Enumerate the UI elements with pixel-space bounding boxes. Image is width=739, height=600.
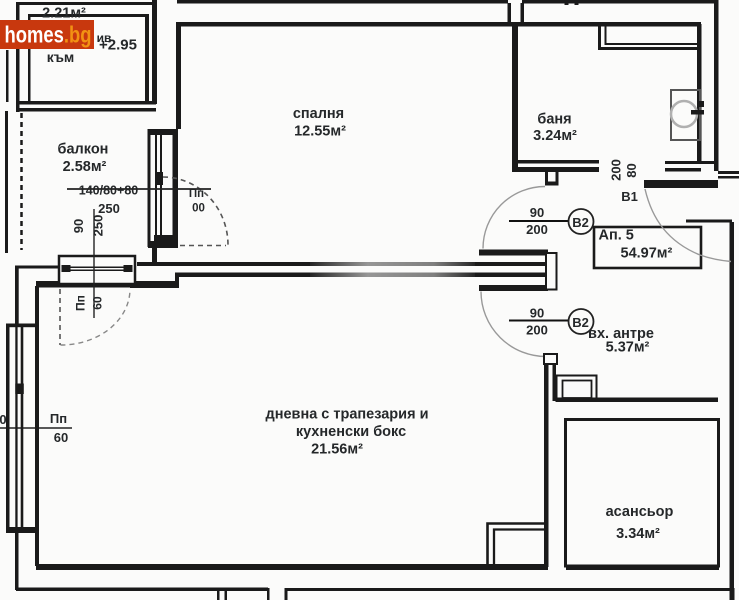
svg-text:80: 80: [624, 163, 639, 177]
svg-text:200: 200: [526, 222, 548, 237]
svg-text:+2.95: +2.95: [99, 37, 137, 54]
svg-text:баня: баня: [537, 112, 571, 128]
svg-text:дневна с трапезария и: дневна с трапезария и: [266, 407, 429, 423]
svg-text:2.21м²: 2.21м²: [42, 6, 86, 22]
svg-text:90: 90: [530, 205, 544, 220]
svg-text:3.24м²: 3.24м²: [533, 128, 577, 144]
svg-text:3.34м²: 3.34м²: [616, 526, 660, 542]
svg-text:12.55м²: 12.55м²: [294, 124, 346, 140]
svg-text:200: 200: [526, 323, 548, 338]
svg-text:асансьор: асансьор: [606, 504, 674, 520]
svg-text:5.37м²: 5.37м²: [606, 340, 650, 356]
svg-text:Ап. 5: Ап. 5: [599, 228, 634, 244]
svg-text:140/80+80: 140/80+80: [79, 184, 138, 198]
svg-text:90: 90: [71, 219, 86, 233]
svg-text:00: 00: [192, 203, 205, 215]
svg-text:Пп: Пп: [50, 411, 67, 426]
svg-text:21.56м²: 21.56м²: [311, 442, 363, 458]
svg-text:B2: B2: [572, 215, 589, 230]
svg-text:54.97м²: 54.97м²: [621, 246, 673, 262]
svg-text:кухненски бокс: кухненски бокс: [296, 424, 406, 440]
svg-text:спалня: спалня: [293, 106, 344, 122]
svg-text:90: 90: [530, 306, 544, 321]
svg-text:250: 250: [91, 215, 106, 237]
svg-text:балкон: балкон: [58, 142, 109, 158]
svg-text:2.58м²: 2.58м²: [63, 159, 107, 175]
svg-text:B2: B2: [572, 315, 589, 330]
svg-text:60: 60: [91, 296, 105, 310]
svg-text:250: 250: [98, 201, 120, 216]
svg-text:B1: B1: [621, 189, 638, 204]
svg-text:0: 0: [0, 412, 7, 427]
svg-text:homes.bg: homes.bg: [5, 22, 92, 48]
svg-text:към: към: [47, 49, 75, 65]
svg-text:200: 200: [609, 159, 624, 181]
svg-text:Пп: Пп: [74, 295, 88, 311]
svg-text:60: 60: [54, 430, 68, 445]
